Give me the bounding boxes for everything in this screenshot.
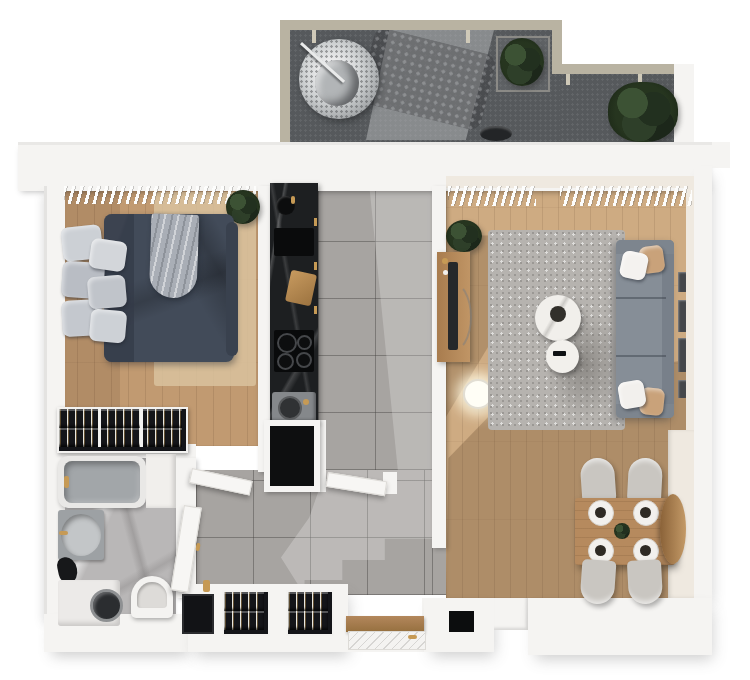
- sofa-pillow-white-bottom: [617, 379, 647, 410]
- dining-chair-top-left: [580, 457, 617, 503]
- floor-plan: [0, 0, 750, 680]
- place-bowl-2: [640, 507, 651, 518]
- wall-frame-2: [678, 300, 686, 332]
- living-plant: [446, 220, 482, 252]
- round-wall-mirror: [660, 494, 686, 564]
- living-window-blinds-right: [560, 186, 692, 206]
- sideboard-decor-vase: [442, 258, 448, 264]
- wall-frame-1: [678, 272, 686, 292]
- place-bowl-1: [595, 507, 606, 518]
- dining-chair-bottom-right: [627, 559, 663, 605]
- living-window-blinds-left: [448, 186, 536, 206]
- sofa-cushion-line-2: [616, 355, 666, 357]
- coffee-table-bowl: [550, 306, 566, 322]
- living-room: [0, 0, 750, 680]
- coffee-table-small: [546, 340, 579, 373]
- remote-control: [553, 351, 566, 356]
- sideboard-decor-candle: [443, 270, 448, 275]
- dining-chair-bottom-left: [580, 559, 617, 605]
- place-bowl-3: [595, 545, 606, 556]
- table-centerpiece: [614, 523, 630, 539]
- dining-chair-top-right: [627, 457, 663, 503]
- wall-frame-3: [678, 338, 686, 372]
- place-bowl-4: [640, 545, 651, 556]
- sofa-cushion-line-1: [616, 297, 666, 299]
- wall-frame-4: [678, 380, 686, 398]
- tv-stand-arc: [428, 280, 472, 354]
